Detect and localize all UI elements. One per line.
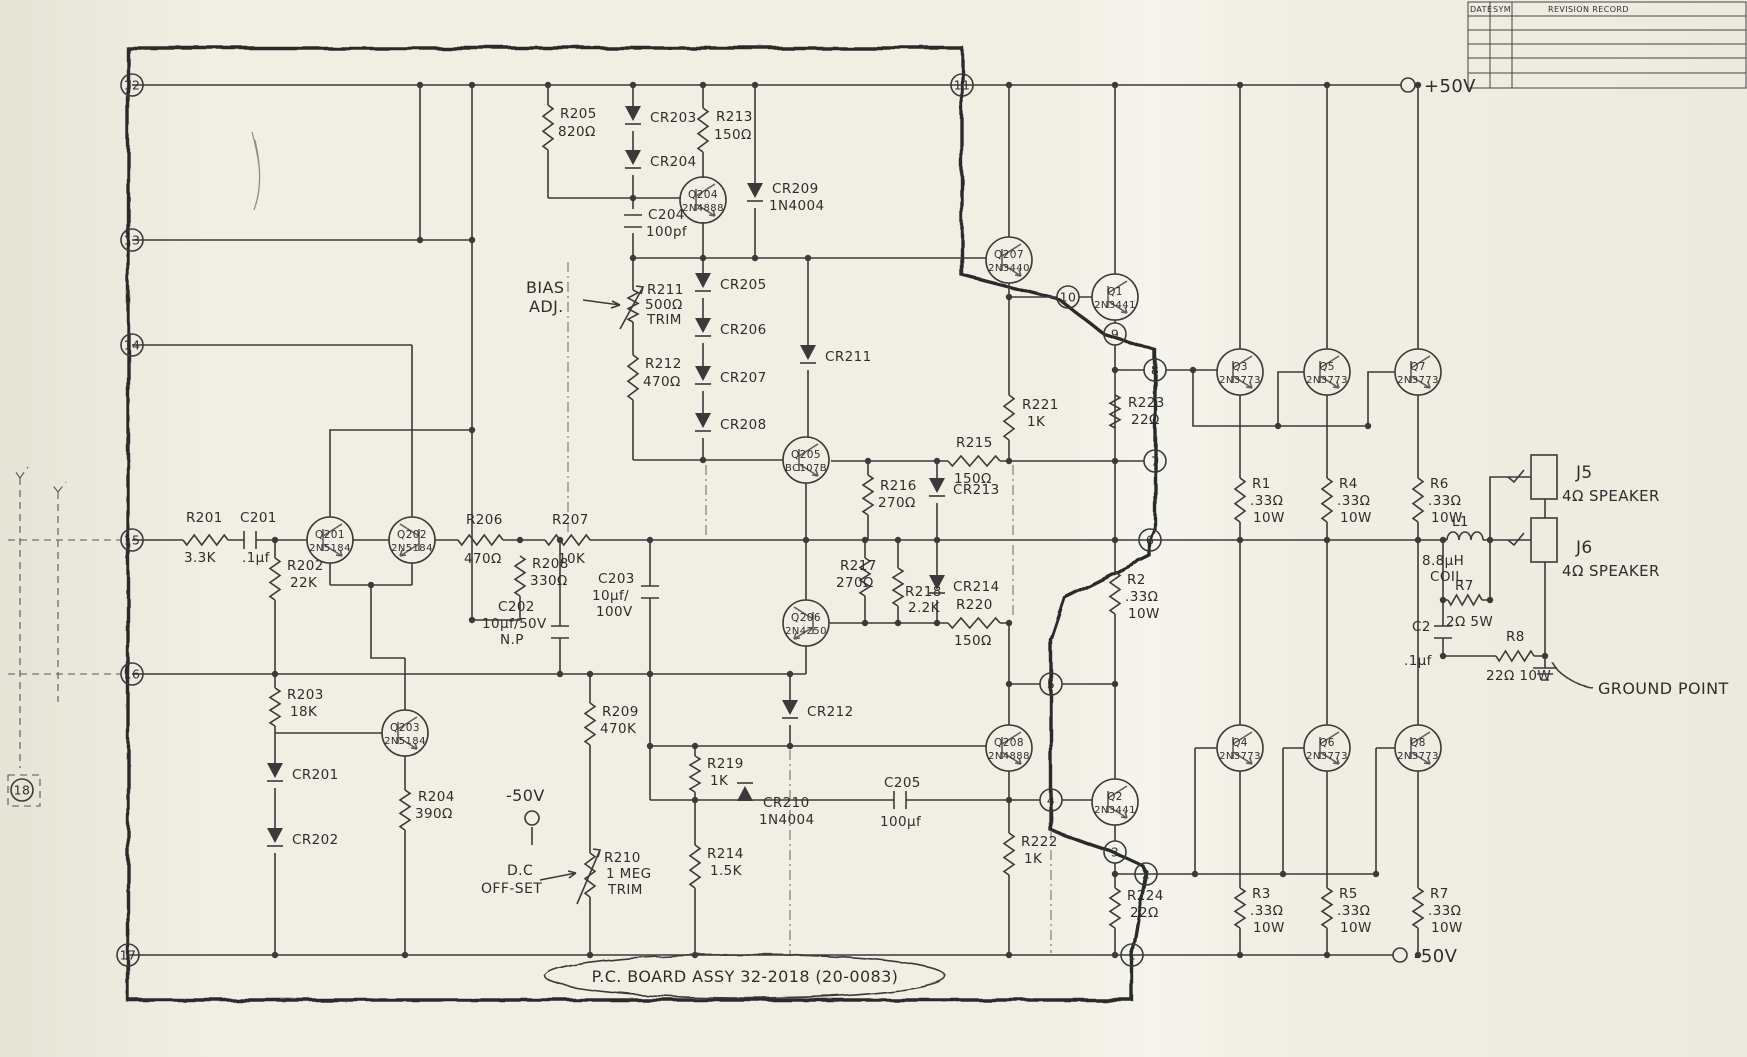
junction-dot	[368, 582, 374, 588]
label-r221-0: R221	[1022, 397, 1059, 413]
junction-dot	[787, 743, 793, 749]
bias-adj-arrow	[583, 300, 620, 308]
bias-adj-label-1: BIAS	[526, 278, 564, 297]
junction-dot	[1112, 458, 1118, 464]
label-c201-1: .1μf	[242, 550, 271, 566]
label-r222-0: R222	[1021, 834, 1058, 850]
wire-tick-j5-tick	[1508, 470, 1524, 482]
resistor-r204	[400, 790, 410, 830]
junction-dot	[934, 458, 940, 464]
transistor-q207-part: 2N3440	[988, 263, 1030, 274]
resistor-r213	[698, 108, 708, 152]
junction-dot	[700, 82, 706, 88]
label-r215-0: R215	[956, 435, 993, 451]
label-cr210-1: 1N4004	[759, 812, 814, 828]
label-r7b-1: .33Ω	[1428, 903, 1461, 919]
label-r6-0: R6	[1430, 476, 1449, 492]
diode-cr209	[747, 183, 763, 198]
pin-1-number: 1	[1128, 948, 1136, 963]
pin-6-number: 6	[1146, 533, 1154, 548]
label-r7z-0: R7	[1455, 578, 1474, 594]
label-r2-0: R2	[1127, 572, 1146, 588]
label-r210-1: 1 MEG	[606, 866, 652, 882]
junction-dot	[630, 82, 636, 88]
label-r219-0: R219	[707, 756, 744, 772]
label-r1-0: R1	[1252, 476, 1271, 492]
pin-17-number: 17	[120, 948, 137, 963]
label-c204-0: C204	[648, 207, 685, 223]
junction-dot	[934, 537, 940, 543]
resistor-r206	[458, 535, 503, 545]
transistor-q206-part: 2N4250	[785, 626, 827, 637]
label-cr204-0: CR204	[650, 154, 697, 170]
transistor-q8-part: 2N3773	[1397, 751, 1439, 762]
junction-dot	[1006, 620, 1012, 626]
label-r216-0: R216	[880, 478, 917, 494]
junction-dot	[895, 620, 901, 626]
junction-dot	[1006, 797, 1012, 803]
label-cr202-0: CR202	[292, 832, 339, 848]
label-cr209-0: CR209	[772, 181, 819, 197]
label-r204-0: R204	[418, 789, 455, 805]
capacitor-c202	[551, 626, 569, 638]
transistor-q206-ref: Q206	[791, 612, 821, 624]
junction-dot	[417, 237, 423, 243]
transistor-q1-ref: Q1	[1107, 286, 1123, 298]
dc-offset-label-1: D.C	[507, 863, 533, 879]
pin-8-number: 8	[1151, 363, 1159, 378]
resistor-r219	[690, 756, 700, 792]
resistor-r3	[1235, 888, 1245, 928]
resistor-r2	[1110, 572, 1120, 614]
minus50v-mid-label: -50V	[506, 786, 545, 805]
junction-dot	[1440, 653, 1446, 659]
junction-dot	[1112, 681, 1118, 687]
resistor-r220	[948, 618, 1000, 628]
pin-11-number: 11	[954, 78, 971, 93]
transistor-q204-part: 2N4888	[682, 203, 724, 214]
label-r211-1: 500Ω	[645, 297, 683, 313]
junction-dot	[934, 620, 940, 626]
diode-cr213	[929, 478, 945, 493]
bias-adj-label-2: ADJ.	[529, 297, 564, 316]
label-r222-1: 1K	[1024, 851, 1043, 867]
ground-point-label: GROUND POINT	[1598, 679, 1729, 698]
resistor-r207	[545, 535, 590, 545]
transistor-q8-ref: Q8	[1410, 737, 1426, 749]
junction-dot	[805, 255, 811, 261]
revision-col-record: REVISION RECORD	[1548, 5, 1629, 14]
label-r5-0: R5	[1339, 886, 1358, 902]
diode-cr206	[695, 318, 711, 333]
ground-point-arrow	[1552, 662, 1592, 687]
label-r201-1: 3.3K	[184, 550, 217, 566]
pin-3-number: 3	[1111, 845, 1119, 860]
resistor-r214	[690, 845, 700, 888]
pencil-scribble	[252, 132, 260, 210]
label-r213-0: R213	[716, 109, 753, 125]
junction-dot	[752, 255, 758, 261]
revision-col-date: DATE	[1470, 5, 1492, 14]
resistor-r1	[1235, 478, 1245, 522]
transistor-q7-ref: Q7	[1410, 361, 1426, 373]
transistor-q5-ref: Q5	[1319, 361, 1335, 373]
junction-dot	[862, 620, 868, 626]
junction-dot	[272, 952, 278, 958]
diode-cr201	[267, 763, 283, 778]
label-cr214-0: CR214	[953, 579, 1000, 595]
label-r202-1: 22K	[290, 575, 318, 591]
junction-dot	[752, 82, 758, 88]
resistor-r6	[1413, 478, 1423, 522]
transistor-q207-ref: Q207	[994, 249, 1024, 261]
label-r224-1: 22Ω	[1130, 905, 1159, 921]
resistor-r201	[183, 535, 228, 545]
label-c2-1: .1μf	[1404, 653, 1433, 669]
label-r7b-0: R7	[1430, 886, 1449, 902]
revision-col-sym: SYM	[1493, 5, 1511, 14]
transistor-q203-ref: Q203	[390, 722, 420, 734]
junction-dot	[865, 458, 871, 464]
label-r221-1: 1K	[1027, 414, 1046, 430]
junction-dot	[1112, 537, 1118, 543]
pin-13-number: 13	[124, 233, 141, 248]
junction-dot	[1440, 597, 1446, 603]
label-c202-1: 10μf/50V	[482, 616, 547, 632]
junction-dot	[1112, 952, 1118, 958]
junction-dot	[587, 671, 593, 677]
junction-dot	[1006, 952, 1012, 958]
junction-dot	[630, 255, 636, 261]
junction-dot	[1237, 82, 1243, 88]
label-c202-0: C202	[498, 599, 535, 615]
pin-7-number: 7	[1151, 454, 1159, 469]
transistor-q6-part: 2N3773	[1306, 751, 1348, 762]
label-c205-0: C205	[884, 775, 921, 791]
junction-dot	[272, 537, 278, 543]
label-r206-1: 470Ω	[464, 551, 502, 567]
junction-dot	[1365, 423, 1371, 429]
label-c203-0: C203	[598, 571, 635, 587]
label-r8-1: 22Ω 10W	[1486, 668, 1551, 684]
resistor-r216	[863, 475, 873, 515]
terminal-minus50v-mid-terminal	[525, 811, 539, 825]
label-c203-1: 10μf/	[592, 588, 629, 604]
junction-dot	[1190, 367, 1196, 373]
dc-offset-label-2: OFF-SET	[481, 881, 542, 897]
transistor-q208-ref: Q208	[994, 737, 1024, 749]
label-r217-1: 270Ω	[836, 575, 874, 591]
junction-dot	[700, 457, 706, 463]
transistor-q2-ref: Q2	[1107, 791, 1123, 803]
label-cr208-0: CR208	[720, 417, 767, 433]
junction-dot	[647, 671, 653, 677]
input-shield-dashes	[8, 467, 121, 806]
plus50v-label: +50V	[1424, 76, 1476, 97]
label-r7z-1: 2Ω 5W	[1446, 614, 1493, 630]
pin-18-number: 18	[14, 783, 31, 798]
revision-table: DATE SYM REVISION RECORD	[1468, 2, 1746, 88]
label-r5-1: .33Ω	[1337, 903, 1370, 919]
junction-dot	[1487, 537, 1493, 543]
label-r3-0: R3	[1252, 886, 1271, 902]
label-r212-0: R212	[645, 356, 682, 372]
label-r211-0: R211	[647, 282, 684, 298]
label-r223-1: 22Ω	[1131, 412, 1160, 428]
junction-dot	[1373, 871, 1379, 877]
label-r214-1: 1.5K	[710, 863, 743, 879]
wire-tick-j6-tick	[1508, 533, 1524, 545]
junction-dot	[272, 671, 278, 677]
label-c2-0: C2	[1412, 619, 1431, 635]
junction-dot	[1275, 423, 1281, 429]
label-r208-1: 330Ω	[530, 573, 568, 589]
label-r213-1: 150Ω	[714, 127, 752, 143]
label-r217-0: R217	[840, 558, 877, 574]
junction-dot	[587, 952, 593, 958]
resistor-r205	[543, 105, 553, 150]
minus50v-label: -50V	[1414, 946, 1458, 967]
label-cr207-0: CR207	[720, 370, 767, 386]
pin-12-number: 12	[124, 78, 141, 93]
label-c205-1: 100μf	[880, 814, 922, 830]
label-cr211-0: CR211	[825, 349, 872, 365]
terminal-minus50v-terminal	[1393, 948, 1407, 962]
junction-dot	[630, 195, 636, 201]
junction-dot	[469, 82, 475, 88]
label-r212-1: 470Ω	[643, 374, 681, 390]
diode-cr203	[625, 106, 641, 121]
label-c203-2: 100V	[596, 604, 633, 620]
label-r4-2: 10W	[1340, 510, 1372, 526]
transistor-q3-ref: Q3	[1232, 361, 1248, 373]
resistor-r221	[1004, 395, 1014, 440]
resistor-r215	[948, 456, 1000, 466]
label-r220-0: R220	[956, 597, 993, 613]
label-r204-1: 390Ω	[415, 806, 453, 822]
capacitor-c205	[894, 791, 906, 809]
resistor-r212	[628, 355, 638, 400]
transistor-q203-part: 2N5184	[384, 736, 426, 747]
junction-dot	[862, 537, 868, 543]
pin-10-number: 10	[1060, 290, 1077, 305]
label-r4-0: R4	[1339, 476, 1358, 492]
j6-desc: 4Ω SPEAKER	[1562, 562, 1660, 580]
label-cr210-0: CR210	[763, 795, 810, 811]
junction-dot	[545, 82, 551, 88]
diode-cr205	[695, 273, 711, 288]
junction-dot	[469, 237, 475, 243]
diode-cr207	[695, 366, 711, 381]
label-r209-0: R209	[602, 704, 639, 720]
label-r206-0: R206	[466, 512, 503, 528]
resistor-r223	[1110, 395, 1120, 428]
junction-dot	[692, 743, 698, 749]
pin-16-number: 16	[124, 667, 141, 682]
label-r207-0: R207	[552, 512, 589, 528]
junction-dot	[1280, 871, 1286, 877]
transistor-q202-part: 2N5184	[391, 543, 433, 554]
pin-2-number: 2	[1142, 867, 1150, 882]
junction-dot	[692, 797, 698, 803]
junction-dot	[1237, 952, 1243, 958]
label-cr212-0: CR212	[807, 704, 854, 720]
junction-dot	[895, 537, 901, 543]
trimmer-arrow-r211	[620, 286, 643, 329]
label-r3-2: 10W	[1253, 920, 1285, 936]
junction-dot	[1112, 82, 1118, 88]
label-r7b-2: 10W	[1431, 920, 1463, 936]
label-r5-2: 10W	[1340, 920, 1372, 936]
label-r6-1: .33Ω	[1428, 493, 1461, 509]
resistor-r208	[515, 556, 525, 596]
junction-dot	[1324, 82, 1330, 88]
label-r210-2: TRIM	[607, 882, 643, 898]
label-r208-0: R208	[532, 556, 569, 572]
junction-dot	[1440, 537, 1446, 543]
resistor-r5	[1322, 888, 1332, 928]
j6-label: J6	[1575, 538, 1593, 558]
junction-dot	[557, 537, 563, 543]
junction-dot	[1324, 537, 1330, 543]
label-r1-1: .33Ω	[1250, 493, 1283, 509]
label-r8-0: R8	[1506, 629, 1525, 645]
label-r205-0: R205	[560, 106, 597, 122]
resistor-r7z	[1448, 595, 1482, 605]
capacitor-c201	[244, 531, 256, 549]
speaker-jack-j5-jack	[1531, 455, 1557, 499]
junction-dot	[1112, 871, 1118, 877]
label-r201-0: R201	[186, 510, 223, 526]
diode-cr211	[800, 345, 816, 360]
capacitor-c203	[641, 586, 659, 598]
label-r224-0: R224	[1127, 888, 1164, 904]
label-r219-1: 1K	[710, 773, 729, 789]
junction-dot	[1006, 681, 1012, 687]
label-r209-1: 470K	[600, 721, 637, 737]
label-cr205-0: CR205	[720, 277, 767, 293]
junction-dot	[1237, 537, 1243, 543]
transistor-q201-ref: Q201	[315, 529, 345, 541]
schematic-page: DATE SYM REVISION RECORD P.C. BOARD ASSY…	[0, 0, 1747, 1057]
resistor-r209	[585, 703, 595, 745]
junction-dot	[1324, 952, 1330, 958]
capacitor-c204	[624, 215, 642, 227]
junction-dot	[1415, 82, 1421, 88]
junction-dot	[1006, 458, 1012, 464]
resistor-r224	[1110, 888, 1120, 928]
junction-dot	[417, 82, 423, 88]
junction-dot	[692, 952, 698, 958]
label-r220-1: 150Ω	[954, 633, 992, 649]
pin-4-number: 4	[1047, 793, 1055, 808]
junction-dot	[1542, 653, 1548, 659]
label-r3-1: .33Ω	[1250, 903, 1283, 919]
diode-cr204	[625, 150, 641, 165]
transistor-q208-part: 2N4888	[988, 751, 1030, 762]
transistor-q7-part: 2N3773	[1397, 375, 1439, 386]
junction-dot	[469, 617, 475, 623]
label-l1-0: L1	[1452, 514, 1469, 530]
pin-5-number: 5	[1047, 677, 1055, 692]
junction-dot	[787, 671, 793, 677]
resistor-r203	[270, 688, 280, 726]
pin-14-number: 14	[124, 338, 141, 353]
transistor-q202-ref: Q202	[397, 529, 427, 541]
resistor-r7b	[1413, 888, 1423, 928]
resistor-r222	[1004, 833, 1014, 875]
schematic-canvas: DATE SYM REVISION RECORD P.C. BOARD ASSY…	[0, 0, 1747, 1057]
label-r2-2: 10W	[1128, 606, 1160, 622]
junction-dot	[1415, 537, 1421, 543]
junction-dot	[1112, 367, 1118, 373]
label-r4-1: .33Ω	[1337, 493, 1370, 509]
label-c201-0: C201	[240, 510, 277, 526]
resistor-r8	[1496, 651, 1534, 661]
speaker-jack-j6-jack	[1531, 518, 1557, 562]
dc-offset-arrow	[540, 871, 576, 880]
transistor-q204-ref: Q204	[688, 189, 718, 201]
junction-dot	[1006, 294, 1012, 300]
junction-dot	[700, 255, 706, 261]
j5-desc: 4Ω SPEAKER	[1562, 487, 1660, 505]
label-r1-2: 10W	[1253, 510, 1285, 526]
pin-9-number: 9	[1111, 327, 1119, 342]
transistor-q4-part: 2N3773	[1219, 751, 1261, 762]
resistor-r202	[270, 558, 280, 600]
label-r215-1: 150Ω	[954, 471, 992, 487]
label-c204-1: 100pf	[646, 224, 688, 240]
junction-dot	[402, 952, 408, 958]
inductor-l1	[1447, 532, 1483, 540]
junction-dot	[469, 427, 475, 433]
label-r2-1: .33Ω	[1125, 589, 1158, 605]
transistor-q2-part: 2N3441	[1094, 805, 1136, 816]
transistor-q1-part: 2N3441	[1094, 300, 1136, 311]
transistor-q205-ref: Q205	[791, 449, 821, 461]
label-r214-0: R214	[707, 846, 744, 862]
label-cr209-1: 1N4004	[769, 198, 824, 214]
junction-dot	[647, 743, 653, 749]
junction-dot	[1487, 597, 1493, 603]
junction-dot	[1006, 82, 1012, 88]
label-r205-1: 820Ω	[558, 124, 596, 140]
junction-dot	[1192, 871, 1198, 877]
diode-cr202	[267, 828, 283, 843]
pin-15-number: 15	[124, 533, 141, 548]
label-cr201-0: CR201	[292, 767, 339, 783]
label-c202-2: N.P	[500, 632, 524, 648]
terminal-plus50v-terminal	[1401, 78, 1415, 92]
transistor-q4-ref: Q4	[1232, 737, 1248, 749]
label-r203-0: R203	[287, 687, 324, 703]
transistor-q6-ref: Q6	[1319, 737, 1335, 749]
transistor-q3-part: 2N3773	[1219, 375, 1261, 386]
junction-dot	[557, 671, 563, 677]
label-cr206-0: CR206	[720, 322, 767, 338]
board-title: P.C. BOARD ASSY 32-2018 (20-0083)	[545, 954, 945, 998]
transistor-q205-part: BC107B	[785, 463, 827, 474]
resistor-r218	[893, 568, 903, 606]
label-r211-2: TRIM	[646, 312, 682, 328]
transistor-q5-part: 2N3773	[1306, 375, 1348, 386]
label-l1-1: 8.8μH	[1422, 553, 1464, 569]
junction-dot	[517, 537, 523, 543]
diode-cr208	[695, 413, 711, 428]
transistor-q201-part: 2N5184	[309, 543, 351, 554]
label-r210-0: R210	[604, 850, 641, 866]
junction-dot	[803, 537, 809, 543]
